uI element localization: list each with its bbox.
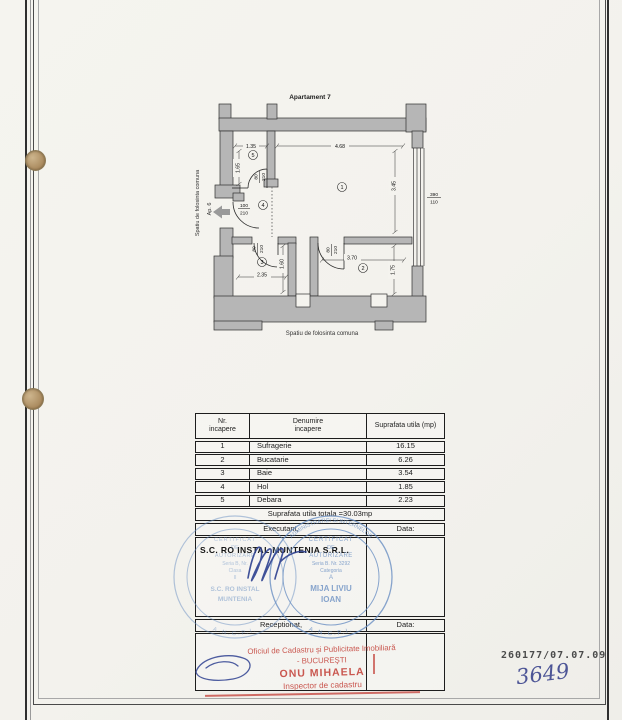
row-name: Baie — [250, 469, 367, 479]
door-main-label: 100 210 — [238, 203, 250, 217]
header-denumire: Denumireincapere — [250, 414, 367, 438]
row-area: 1.85 — [367, 482, 444, 492]
paper-fastener-bottom — [22, 388, 44, 410]
registration-number: 260177/07.07.09 — [501, 650, 606, 661]
dim-sufragerie-height: 3.45 — [392, 181, 398, 191]
row-nr: 2 — [196, 455, 250, 465]
row-nr: 5 — [196, 496, 250, 506]
executant-data-label: Data: — [367, 524, 444, 535]
row-name: Bucatarie — [250, 455, 367, 465]
dim-sufragerie-width: 4.68 — [335, 144, 345, 150]
window-size-label: 390 110 — [427, 192, 441, 206]
label-common-area-left: Spatiu de folosinta comuna — [195, 169, 201, 236]
door-main-width: 100 — [240, 203, 248, 209]
row-area: 6.26 — [367, 455, 444, 465]
dim-bucatarie-height: 1.75 — [391, 265, 397, 275]
row-name: Sufragerie — [250, 442, 367, 452]
door-bucatarie-width: 80 — [326, 247, 332, 253]
red-stamp-border-tick — [373, 654, 375, 674]
door-main-height: 210 — [240, 211, 248, 217]
svg-text:1: 1 — [340, 185, 343, 191]
plan-walls — [214, 104, 426, 330]
company-name: S.C. RO INSTAL MUNTENIA S.R.L. — [200, 545, 349, 555]
row-nr: 3 — [196, 469, 250, 479]
door-baie-width: 80 — [252, 246, 258, 252]
row-name: Hol — [250, 482, 367, 492]
executant-row: Executant, Data: — [195, 523, 445, 536]
floor-plan: Apartament 7 — [165, 88, 470, 340]
row-area: 2.23 — [367, 496, 444, 506]
row-area: 3.54 — [367, 469, 444, 479]
door-baie-height: 210 — [259, 245, 265, 253]
page-edge-left-dark — [25, 0, 27, 720]
table-row: 5 Debara 2.23 — [195, 495, 445, 507]
red-stamp: Oficiul de Cadastru şi Publicitate Imobi… — [197, 642, 446, 694]
row-nr: 1 — [196, 442, 250, 452]
room-4-hol: 4 — [259, 201, 268, 210]
scanned-document-page: Apartament 7 — [0, 0, 622, 720]
dim-debara-height: 1.65 — [236, 163, 242, 173]
label-ap6: Ap. 6 — [207, 203, 213, 216]
row-nr: 4 — [196, 482, 250, 492]
table-row: 2 Bucatarie 6.26 — [195, 454, 445, 466]
table-row: 4 Hol 1.85 — [195, 481, 445, 493]
svg-text:4: 4 — [261, 203, 264, 209]
ap6-arrow-icon — [213, 206, 230, 219]
svg-text:5: 5 — [251, 153, 254, 159]
svg-text:2: 2 — [361, 266, 364, 272]
dim-baie-width: 2.35 — [257, 273, 267, 279]
page-edge-right-dark — [607, 0, 609, 720]
label-common-area-bottom: Spatiu de folosinta comuna — [286, 331, 359, 337]
executant-data-cell — [367, 538, 444, 616]
total-area-label: Suprafata utila totala =30.03mp — [196, 509, 444, 520]
dim-debara-width: 1.35 — [246, 144, 256, 150]
executant-signature-row: S.C. RO INSTAL MUNTENIA S.R.L. — [195, 537, 445, 617]
svg-text:3: 3 — [260, 260, 263, 266]
header-nr-incapere: Nr.incapere — [196, 414, 250, 438]
room-2-bucatarie: 2 — [359, 264, 368, 273]
receptionat-label: Receptionat, — [196, 620, 367, 631]
window-width: 390 — [430, 192, 438, 198]
executant-company-cell: S.C. RO INSTAL MUNTENIA S.R.L. — [196, 538, 367, 616]
room-3-baie: 3 — [258, 258, 267, 267]
paper-fastener-top — [25, 150, 46, 171]
door-bucatarie-height: 210 — [333, 246, 339, 254]
door-debara-height: 210 — [261, 173, 267, 181]
table-row: 3 Baie 3.54 — [195, 468, 445, 480]
window-height: 110 — [430, 200, 438, 206]
receptionat-data-label: Data: — [367, 620, 444, 631]
header-suprafata: Suprafata utila (mp) — [367, 414, 444, 438]
window-glazing — [414, 148, 425, 266]
room-1-sufragerie: 1 — [338, 183, 347, 192]
door-debara-width: 80 — [254, 174, 260, 180]
receptionat-row: Receptionat, Data: — [195, 619, 445, 632]
page-edge-left-gray — [30, 0, 31, 720]
dim-bucatarie-width: 3.70 — [347, 256, 357, 262]
dim-baie-height: 1.60 — [280, 259, 286, 269]
table-total-row: Suprafata utila totala =30.03mp — [195, 508, 445, 521]
table-row: 1 Sufragerie 16.15 — [195, 441, 445, 453]
row-area: 16.15 — [367, 442, 444, 452]
executant-label: Executant, — [196, 524, 367, 535]
table-header-row: Nr.incapere Denumireincapere Suprafata u… — [195, 413, 445, 439]
plan-title: Apartament 7 — [289, 94, 331, 101]
room-5-debara: 5 — [249, 151, 258, 160]
row-name: Debara — [250, 496, 367, 506]
